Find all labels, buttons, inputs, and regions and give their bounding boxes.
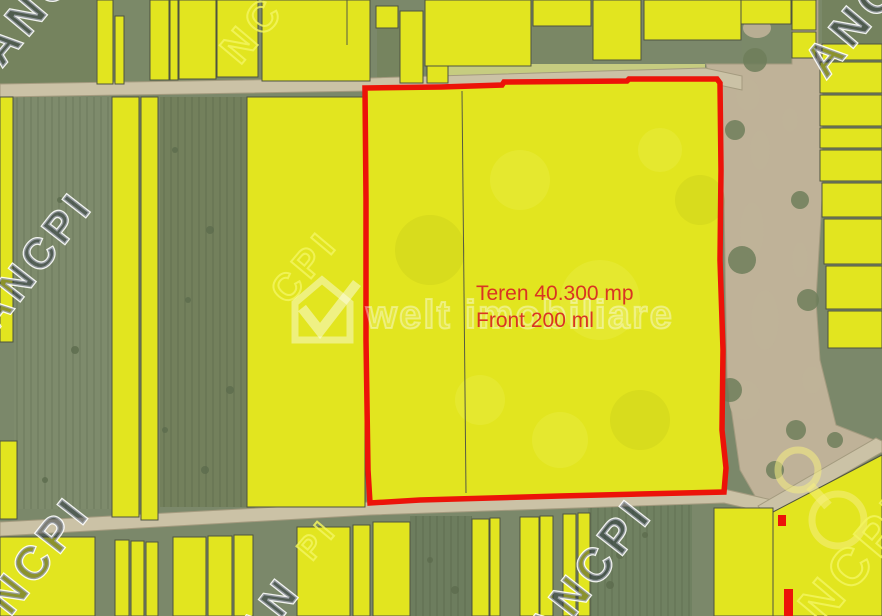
- scrub-blob: [797, 289, 819, 311]
- parcel-yellow: [741, 0, 791, 24]
- parcel-yellow: [490, 518, 500, 616]
- tree-dot: [185, 297, 191, 303]
- field-patch: [377, 26, 400, 84]
- parcel-mottle: [675, 175, 725, 225]
- parcel-yellow: [173, 537, 206, 616]
- scrub-blob: [827, 432, 843, 448]
- parcel-yellow: [820, 128, 882, 148]
- parcel-yellow: [131, 541, 144, 616]
- scrub-blob: [728, 246, 756, 274]
- parcel-yellow: [472, 519, 489, 616]
- scrub-blob: [786, 420, 806, 440]
- parcel-yellow: [0, 441, 17, 519]
- parcel-yellow: [150, 0, 169, 80]
- parcel-yellow: [714, 508, 773, 616]
- parcel-yellow: [179, 0, 216, 79]
- parcel-yellow: [115, 16, 124, 84]
- field-patch: [533, 26, 593, 68]
- scrub-blob: [743, 48, 767, 72]
- parcel-yellow: [353, 525, 370, 616]
- field-rows-texture: [160, 97, 247, 507]
- parcel-yellow: [112, 97, 139, 517]
- parcel-yellow: [593, 0, 641, 60]
- tree-dot: [451, 586, 459, 594]
- parcel-yellow: [644, 0, 741, 40]
- parcel-mottle: [490, 150, 550, 210]
- dirt-blob: [750, 130, 770, 170]
- parcel-yellow: [115, 540, 129, 616]
- parcel-yellow: [373, 522, 410, 616]
- scrub-blob: [725, 120, 745, 140]
- dirt-blob: [751, 290, 779, 350]
- tree-dot: [201, 466, 209, 474]
- parcel-yellow: [792, 0, 816, 30]
- field-rows-texture: [410, 516, 472, 616]
- dirt-blob: [792, 242, 808, 278]
- tree-dot: [172, 147, 178, 153]
- parcel-yellow: [376, 6, 398, 28]
- tree-dot: [71, 346, 79, 354]
- tree-dot: [162, 427, 168, 433]
- parcel-yellow: [208, 536, 232, 616]
- dirt-blob: [802, 366, 822, 394]
- parcel-yellow: [824, 219, 882, 264]
- tree-dot: [42, 477, 48, 483]
- parcel-yellow: [533, 0, 591, 26]
- parcel-yellow: [141, 97, 158, 520]
- parcel-mottle: [610, 390, 670, 450]
- parcel-yellow: [828, 311, 882, 348]
- parcel-yellow: [97, 0, 113, 84]
- parcel-yellow: [822, 183, 882, 217]
- satellite-map-image: ANCPIANCPIANCPIANCPIANCPIANNCCPIPIANCPI …: [0, 0, 882, 616]
- tree-dot: [206, 226, 214, 234]
- parcel-yellow: [146, 542, 158, 616]
- parcel-yellow: [820, 150, 882, 181]
- parcel-yellow: [820, 95, 882, 126]
- area-label: Teren 40.300 mp: [476, 283, 634, 305]
- tree-dot: [226, 386, 234, 394]
- parcel-yellow: [826, 266, 882, 309]
- parcel-mottle: [532, 412, 588, 468]
- parcel-yellow: [425, 0, 531, 66]
- front-label: Front 200 ml: [476, 310, 594, 332]
- parcel-mottle: [638, 128, 682, 172]
- parcel-yellow: [400, 11, 423, 83]
- parcel-mottle: [455, 375, 505, 425]
- tree-dot: [427, 557, 433, 563]
- parcel-yellow: [170, 0, 178, 80]
- scrub-blob: [791, 191, 809, 209]
- dirt-blob: [782, 108, 798, 132]
- red-parcel-marker: [778, 515, 786, 526]
- parcel-mottle: [395, 215, 465, 285]
